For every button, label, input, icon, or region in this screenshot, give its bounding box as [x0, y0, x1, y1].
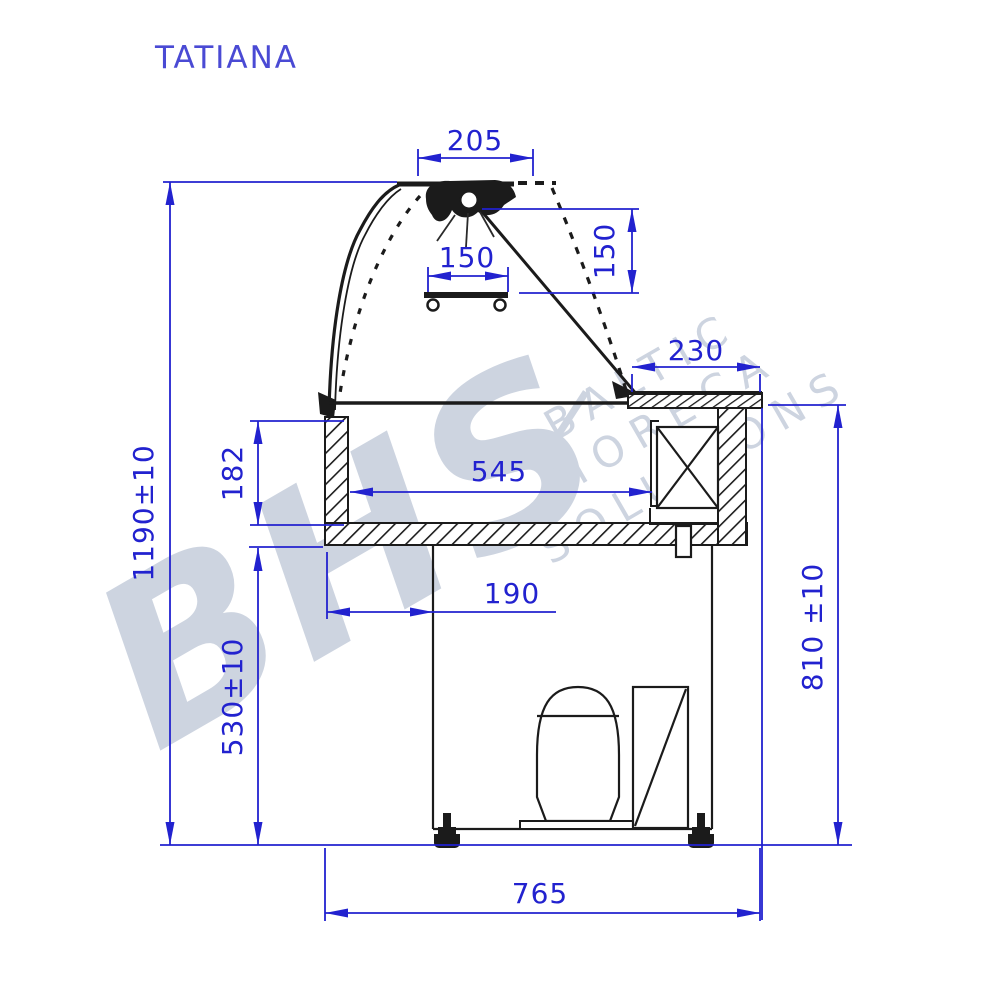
- dim-label-rear-counter: 230: [668, 334, 724, 367]
- watermark: BHS BALTIC HORECA SOLUTIONS: [52, 301, 858, 800]
- drain-fitting: [676, 526, 691, 557]
- dim-label-canopy-width: 205: [447, 124, 503, 157]
- dim-label-well-depth: 182: [216, 445, 249, 501]
- compressor: [520, 687, 634, 829]
- dim-label-base-inset: 190: [484, 577, 540, 610]
- shelf-rail: [424, 295, 508, 311]
- right-foot: [688, 813, 714, 848]
- well-right-wall: [718, 408, 746, 545]
- compressor-base-plate: [520, 821, 634, 829]
- dim-label-counter-height: 810 ±10: [796, 563, 829, 691]
- dim-label-under-height: 530±10: [216, 638, 249, 757]
- rear-counter-top: [628, 393, 762, 408]
- dim-label-well-width: 545: [471, 455, 527, 488]
- dim-label-lamp-width: 150: [439, 241, 495, 274]
- drawing-title: TATIANA: [154, 40, 298, 76]
- condenser: [633, 687, 688, 828]
- dim-label-overall-depth: 765: [512, 877, 568, 910]
- lamp-bulb: [461, 192, 478, 209]
- drawing-page: BHS BALTIC HORECA SOLUTIONS TATIANA: [0, 0, 1000, 1000]
- technical-drawing: BHS BALTIC HORECA SOLUTIONS TATIANA: [0, 0, 1000, 1000]
- evaporator-box: [649, 421, 718, 524]
- left-foot: [434, 813, 460, 848]
- dim-label-overall-height: 1190±10: [127, 444, 160, 581]
- dim-label-lamp-height: 150: [588, 223, 621, 279]
